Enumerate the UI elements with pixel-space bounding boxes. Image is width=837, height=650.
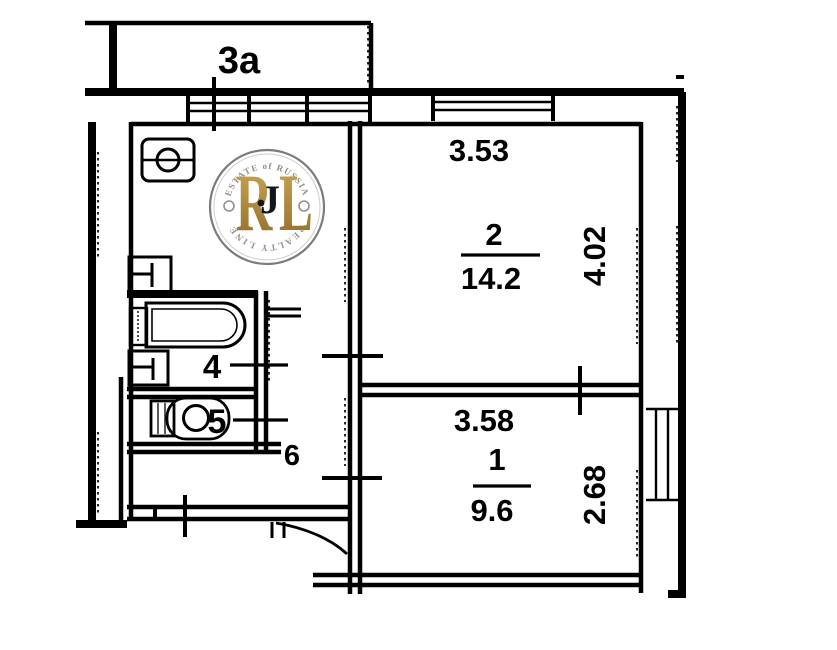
floor-plan-canvas: 3a 3.53 2 14.2 4.02 3.58 1 9.6 2.68 4 5 … [0,0,837,650]
room2-width-dim: 3.53 [449,133,509,168]
balcony-label: 3a [218,40,261,82]
bathtub-inner-rim [152,309,237,341]
room2-number: 2 [485,217,502,252]
labels-group: 3a 3.53 2 14.2 4.02 3.58 1 9.6 2.68 4 5 … [203,40,612,528]
window-frames [188,95,553,122]
room1-depth-dim: 2.68 [577,465,612,525]
room1-area: 9.6 [470,493,513,528]
obscured-glyph: J [260,177,280,222]
watermark-monogram-l: L [279,157,313,248]
hallway-number: 6 [284,440,300,472]
room2-area: 14.2 [461,261,521,296]
floor-plan-document: 3a 3.53 2 14.2 4.02 3.58 1 9.6 2.68 4 5 … [0,0,837,650]
watermark-badge: ESTATE of RUSSIA REALTY LINE R L J [209,149,326,266]
entrance-door-arc [276,523,347,554]
bathroom-number: 4 [203,348,222,385]
toilet-bowl-circle [184,406,209,431]
room-leader-lines [230,365,288,420]
vent-duct-lower-symbol [131,358,153,380]
toilet-number: 5 [208,403,227,441]
room2-depth-dim: 4.02 [577,226,612,286]
toilet-tank-hatch [158,403,165,434]
vent-duct-upper-symbol [131,263,152,287]
watermark-side-dot-left [224,201,234,211]
kitchen-door-stub [265,309,301,316]
room1-number: 1 [488,442,505,477]
room1-width-dim: 3.58 [454,403,514,438]
